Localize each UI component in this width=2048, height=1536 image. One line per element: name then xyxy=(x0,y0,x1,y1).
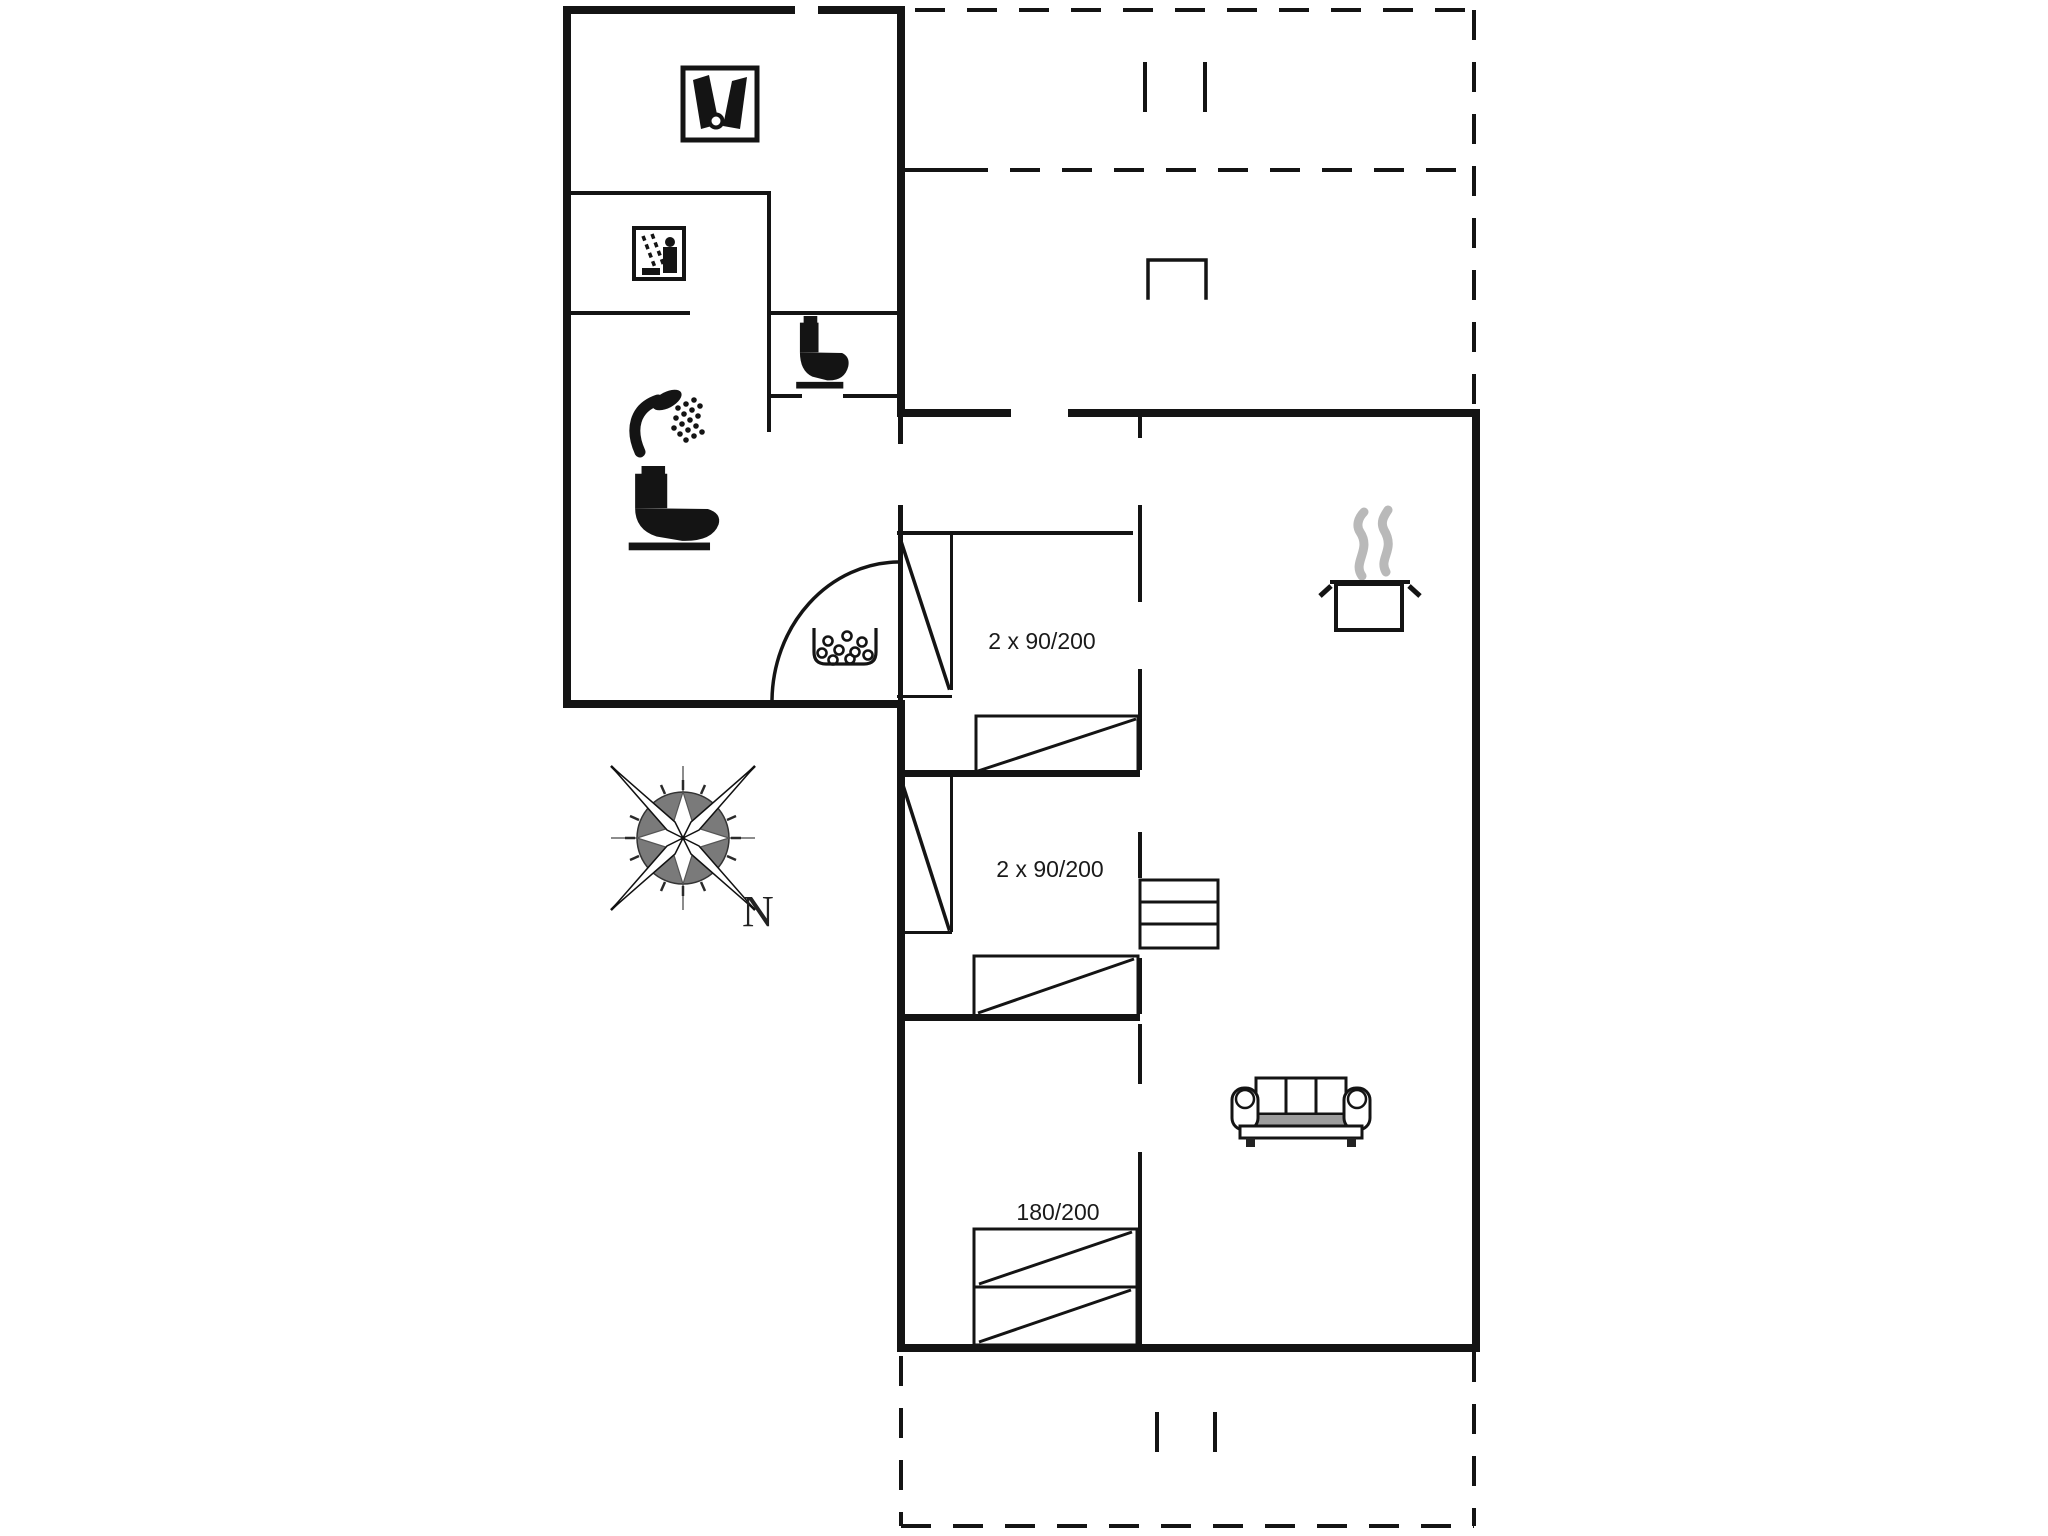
room-labels: 2 x 90/200 2 x 90/200 180/200 xyxy=(988,628,1103,1225)
wall-utility-left xyxy=(563,6,571,708)
steam-wisp-1 xyxy=(1358,512,1364,576)
wall-utility-partition-h xyxy=(566,191,770,195)
bed-double-90-top xyxy=(976,716,1138,773)
wall-corridor-seg-4 xyxy=(1138,832,1142,878)
bedroom2-door-leaf xyxy=(901,779,949,929)
entrance-door-swing-arc xyxy=(772,562,897,700)
wall-utility-bottom xyxy=(563,700,905,708)
toilet-icon xyxy=(796,316,848,389)
wall-living-top-b xyxy=(1068,409,1480,417)
bedroom2-bed-size-label: 2 x 90/200 xyxy=(996,856,1103,882)
bedroom1-bed-size-label: 2 x 90/200 xyxy=(988,628,1095,654)
wall-corridor-seg-6 xyxy=(1138,1024,1142,1084)
wall-living-top-a xyxy=(897,409,1011,417)
wall-corridor-seg-1 xyxy=(1138,415,1142,438)
floor-plan-drawing: N 2 x 90/200 2 x 90/200 180/200 xyxy=(0,0,2048,1536)
floor-plan-canvas: N 2 x 90/200 2 x 90/200 180/200 xyxy=(0,0,2048,1536)
bed-180-bottom xyxy=(974,1229,1137,1345)
shower-icon xyxy=(635,385,705,452)
wall-bedroom1-closet-side xyxy=(950,535,953,690)
sauna-icon xyxy=(634,228,684,279)
wall-wc-top xyxy=(767,311,905,315)
wall-house-left xyxy=(897,700,905,1352)
toilet-icon xyxy=(629,466,719,550)
wall-bedroom1-closet-shelf xyxy=(897,695,952,698)
bedroom3-bed-size-label: 180/200 xyxy=(1016,1199,1099,1225)
wall-bedroom3-right xyxy=(1138,1152,1142,1344)
wall-bedroom1-top xyxy=(897,531,1133,535)
doormat-dots-icon xyxy=(814,628,876,665)
stairs-icon xyxy=(1140,880,1218,948)
terrace-grill-icon xyxy=(1148,260,1206,298)
wall-corridor-seg-2 xyxy=(1138,505,1142,602)
exterior-walls xyxy=(563,6,1480,1352)
wall-hall-stub-upper xyxy=(898,417,903,444)
bedroom1-door-leaf xyxy=(900,538,949,688)
cooking-pot-icon xyxy=(1320,510,1420,630)
wall-utility-top-left xyxy=(563,6,795,14)
wall-utility-top-right xyxy=(818,6,905,14)
shower-spray-dots xyxy=(671,397,705,443)
bed-double-90-middle xyxy=(974,956,1138,1016)
washing-machine-icon xyxy=(683,68,757,140)
compass-rose-icon: N xyxy=(611,766,774,936)
doors xyxy=(772,538,949,929)
steam-wisp-2 xyxy=(1382,510,1388,572)
compass-north-label: N xyxy=(742,887,774,936)
wall-terrace-stub xyxy=(905,168,958,172)
wall-right xyxy=(1472,409,1480,1352)
sofa-icon xyxy=(1232,1078,1370,1147)
interior-walls xyxy=(566,168,1142,1344)
wall-bedroom2-closet-shelf xyxy=(897,931,952,934)
beds xyxy=(974,716,1138,1345)
wall-wc-bottom-right xyxy=(843,394,905,398)
wall-wc-bottom-left xyxy=(767,394,802,398)
wall-bedroom2-closet-side xyxy=(950,777,953,932)
wall-main-upper xyxy=(897,6,905,417)
wall-bathroom-top xyxy=(566,311,690,315)
